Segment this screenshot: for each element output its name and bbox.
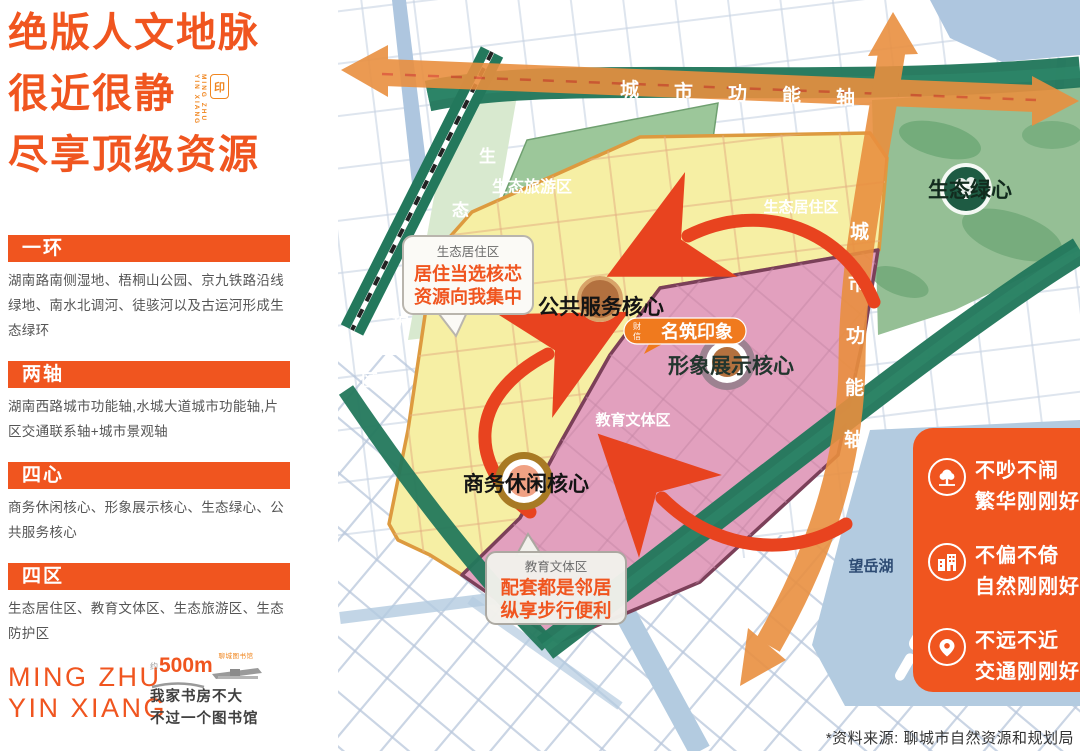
distance-value: 500m [159,655,213,676]
library-building-icon [208,660,264,682]
section-header: 两轴 [8,361,290,388]
callout-tag: 教育文体区 [525,559,588,574]
svg-text:纵享步行便利: 纵享步行便利 [500,600,611,621]
zone-residential-label: 生态居住区 [763,198,838,216]
brand-logo-en: MING ZHU YIN XIANG [8,662,167,724]
plan-summary-sections: 一环 湖南路南侧湿地、梧桐山公园、京九铁路沿线绿地、南水北调河、徒骇河以及古运河… [8,235,290,664]
svg-text:城: 城 [850,220,869,243]
svg-text:轴: 轴 [844,428,863,451]
benefit-item-3: 不远不近 交通刚刚好 [928,626,1080,688]
svg-text:市: 市 [674,80,693,103]
benefit-item-1: 不吵不闹 繁华刚刚好 [928,456,1080,518]
svg-text:城: 城 [620,78,639,101]
seal-icon: 印 [210,74,229,99]
svg-text:护: 护 [392,312,409,332]
core-green-heart-label: 生态绿心 [928,178,1012,202]
section-four-zones: 四区 生态居住区、教育文体区、生态旅游区、生态防护区 [8,563,290,647]
park-icon [928,458,966,496]
benefit-item-2: 不偏不倚 自然刚刚好 [928,541,1080,603]
svg-text:生: 生 [479,146,496,166]
brand-name-vertical: MING ZHU YIN XIANG [193,74,207,126]
title-line-3: 尽享顶级资源 [8,124,308,185]
section-two-axes: 两轴 湖南西路城市功能轴,水城大道城市功能轴,片区交通联系轴+城市景观轴 [8,361,290,445]
svg-text:配套都是邻居: 配套都是邻居 [500,577,611,598]
svg-text:能: 能 [782,84,801,107]
benefits-panel: 不吵不闹 繁华刚刚好 不偏不倚 自然刚刚好 [913,428,1080,692]
callout-tag: 生态居住区 [437,245,500,259]
core-public-service-label: 公共服务核心 [538,295,664,319]
section-body: 商务休闲核心、形象展示核心、生态绿心、公共服务核心 [8,496,290,546]
section-header: 四心 [8,462,290,489]
core-business-leisure-label: 商务休闲核心 [463,472,589,496]
svg-text:信: 信 [633,331,641,341]
section-body: 湖南路南侧湿地、梧桐山公园、京九铁路沿线绿地、南水北调河、徒骇河以及古运河形成生… [8,269,290,344]
badge-prefix: 财 [633,321,641,331]
buildings-icon [928,543,966,581]
svg-text:功: 功 [728,83,747,105]
zone-tourism-label: 生态旅游区 [492,177,572,196]
section-header: 四区 [8,563,290,590]
data-source-note: *资料来源: 聊城市自然资源和规划局 [826,727,1074,748]
svg-text:能: 能 [845,376,864,399]
title-line-1: 绝版人文地脉 [8,2,308,63]
section-body: 生态居住区、教育文体区、生态旅游区、生态防护区 [8,597,290,647]
svg-text:居住当选核芯: 居住当选核芯 [414,263,522,284]
lake-label: 望岳湖 [848,557,893,575]
poster: 城 市 功 能 轴 城 市 功 能 轴 生 态 防 护 区 生态 [0,0,1080,751]
core-image-display-label: 形象展示核心 [668,354,794,378]
badge-name: 名筑印象 [661,321,733,342]
svg-text:区: 区 [361,371,378,390]
section-four-cores: 四心 商务休闲核心、形象展示核心、生态绿心、公共服务核心 [8,462,290,546]
svg-text:功: 功 [846,325,865,347]
svg-text:态: 态 [452,200,469,220]
svg-text:资源向我集中: 资源向我集中 [414,286,522,307]
distance-approx: 约 [150,661,158,672]
section-header: 一环 [8,235,290,262]
brand-mark: MING ZHU YIN XIANG 印 [193,74,229,126]
title-line-2: 很近很静 [8,63,308,124]
library-slogan: 我家书房不大 不过一个图书馆 [150,687,259,731]
library-marker: 聊城图书馆 [208,650,264,687]
section-body: 湖南西路城市功能轴,水城大道城市功能轴,片区交通联系轴+城市景观轴 [8,395,290,445]
section-one-ring: 一环 湖南路南侧湿地、梧桐山公园、京九铁路沿线绿地、南水北调河、徒骇河以及古运河… [8,235,290,344]
poster-title: 绝版人文地脉 很近很静 尽享顶级资源 [8,2,308,185]
library-label: 聊城图书馆 [208,650,264,660]
zone-education-label: 教育文体区 [594,411,670,429]
svg-text:轴: 轴 [836,86,855,109]
pin-icon [928,628,966,666]
